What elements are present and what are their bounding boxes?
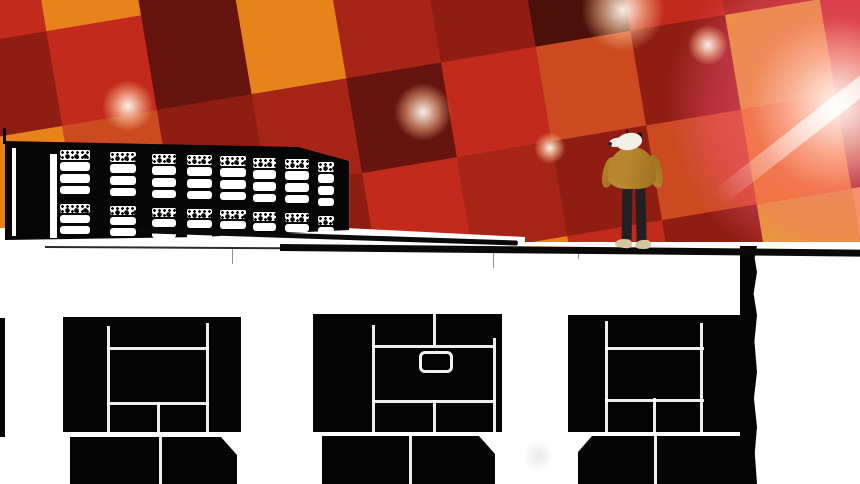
window-louver-bar bbox=[285, 183, 309, 192]
window-louver-bar bbox=[253, 223, 276, 231]
window-speckle-band bbox=[220, 156, 246, 166]
window-louver-bar bbox=[187, 167, 212, 176]
character-nose bbox=[608, 142, 612, 146]
sky-tile bbox=[630, 15, 741, 126]
window-speckle-band bbox=[60, 204, 90, 213]
window-speckle-band bbox=[187, 209, 212, 218]
window-speckle-band bbox=[220, 210, 246, 219]
window-speckle-band bbox=[318, 216, 334, 225]
window-louver-bar bbox=[110, 228, 136, 236]
window-louver-bar bbox=[253, 182, 276, 191]
character-protagonist bbox=[602, 127, 664, 249]
character-leg-left bbox=[622, 187, 633, 242]
window-louver-bar bbox=[60, 226, 90, 234]
window-speckle-band bbox=[152, 154, 176, 164]
sky-tile bbox=[46, 15, 157, 126]
window-louver-bar bbox=[187, 191, 212, 199]
window-louver-bar bbox=[318, 186, 334, 195]
window-louver-bar bbox=[220, 168, 246, 177]
building-facade bbox=[0, 242, 860, 484]
window-louver-bar bbox=[285, 171, 309, 180]
window-louver-bar bbox=[60, 162, 90, 171]
sky-tile bbox=[725, 0, 836, 110]
window-louver-bar bbox=[60, 215, 90, 223]
window-louver-bar bbox=[253, 170, 276, 179]
window-speckle-band bbox=[285, 213, 309, 222]
window-speckle-band bbox=[187, 155, 212, 165]
window-speckle-band bbox=[152, 208, 176, 217]
character-shoe-left bbox=[615, 238, 633, 248]
window-speckle-band bbox=[253, 212, 276, 221]
character-jacket bbox=[608, 147, 656, 189]
window-speckle-band bbox=[318, 162, 334, 172]
window-louver-bar bbox=[60, 186, 90, 194]
window-speckle-band bbox=[110, 152, 136, 162]
window-louver-bar bbox=[152, 178, 176, 187]
window-louver-bar bbox=[285, 195, 309, 203]
window-louver-bar bbox=[152, 219, 176, 227]
sky-tile bbox=[141, 0, 252, 110]
antenna bbox=[3, 128, 6, 144]
window-louver-bar bbox=[220, 192, 246, 200]
sky-tile bbox=[441, 47, 552, 158]
left-rooftop-structure bbox=[0, 126, 352, 240]
character-leg-right bbox=[635, 187, 646, 244]
window-louver-bar bbox=[152, 190, 176, 198]
window-speckle-band bbox=[110, 206, 136, 215]
window-louver-bar bbox=[220, 221, 246, 229]
structure-slit bbox=[12, 148, 16, 236]
sky-tile bbox=[346, 63, 457, 174]
structure-slit bbox=[50, 154, 57, 238]
window-louver-bar bbox=[60, 174, 90, 183]
sky-tile bbox=[741, 94, 852, 205]
window-louver-bar bbox=[318, 174, 334, 183]
window-louver-bar bbox=[187, 220, 212, 228]
window-louver-bar bbox=[110, 164, 136, 173]
window-louver-bar bbox=[152, 166, 176, 175]
window-speckle-band bbox=[60, 150, 90, 160]
window-speckle-band bbox=[285, 159, 309, 169]
window-speckle-band bbox=[253, 158, 276, 168]
window-louver-bar bbox=[110, 188, 136, 196]
window-louver-bar bbox=[318, 198, 334, 206]
character-shoe-right bbox=[635, 240, 651, 250]
game-viewport[interactable] bbox=[0, 0, 860, 484]
window-louver-bar bbox=[220, 180, 246, 189]
window-louver-bar bbox=[187, 179, 212, 188]
window-louver-bar bbox=[253, 194, 276, 202]
window-louver-bar bbox=[110, 176, 136, 185]
window-louver-bar bbox=[285, 224, 309, 232]
window-louver-bar bbox=[110, 217, 136, 225]
sky-tile bbox=[536, 31, 647, 142]
